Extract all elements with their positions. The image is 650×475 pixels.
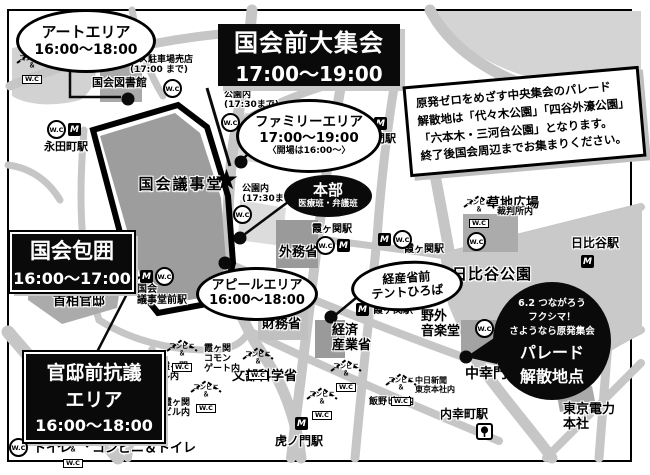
parade-line5: 解散地点 <box>493 363 611 387</box>
tepco-label: 東京電力 本社 <box>563 403 615 432</box>
headquarters-name: 本部 <box>313 182 343 199</box>
wc-icon: W.C <box>393 230 412 249</box>
chunichi-shimbun-note: 中日新聞 東京本社内 <box>415 377 455 395</box>
family-area-time: 17:00～19:00 <box>259 131 358 147</box>
wc-icon: W.C <box>163 79 182 98</box>
main-rally-time: 17:00～19:00 <box>218 58 400 87</box>
tepco-line2: 本社 <box>563 418 615 433</box>
convenience-wc-icon: コンビニ ＆ W.C <box>384 372 418 406</box>
family-area-note: 〈開場は16:00～〉 <box>268 146 351 156</box>
shop-icon-amp: ＆ <box>56 446 90 453</box>
meti-line1: 経済 <box>332 324 371 339</box>
headquarters-sub: 医療班・弁護班 <box>298 200 358 210</box>
kokkaigijidomae-icons: M W.C <box>140 267 174 286</box>
convenience-wc-icon: コンビニ ＆ W.C <box>462 194 496 228</box>
star-marker-diet-east: ★ <box>214 166 239 194</box>
pm-office-label: 首相官邸 <box>53 295 105 310</box>
family-area-callout: ファミリーエリア 17:00～19:00 〈開場は16:00～〉 <box>236 99 382 173</box>
mofa-label: 外務省 <box>279 246 318 261</box>
kantei-protest-banner: 官邸前抗議 エリア 16:00～18:00 <box>24 352 164 442</box>
station-kasumigaseki-a: 霞ヶ関駅 <box>312 224 352 235</box>
art-area-dot <box>122 93 135 106</box>
kasumigaseki-bldg-note: 霞ヶ関 ビル内 <box>163 398 190 418</box>
shop-icon-wc: W.C <box>63 459 83 468</box>
headquarters-callout: 本部 医療班・弁護班 <box>284 175 372 217</box>
park-note1-line1: 公園内 <box>224 90 279 100</box>
appeal-area-callout: アピールエリア 16:00～18:00 <box>196 267 318 321</box>
surround-time: 16:00～17:00 <box>12 265 132 289</box>
wc-icon: W.C <box>475 319 494 338</box>
art-area-time: 16:00～18:00 <box>34 42 137 58</box>
shop-icon-amp: ＆ <box>384 384 418 391</box>
shop-icon-amp: ＆ <box>189 391 223 398</box>
shop-icon-wc: W.C <box>172 363 192 372</box>
meti-label: 経済 産業省 <box>332 324 371 353</box>
kasumigaseki-a-icons: W.C M <box>316 236 350 255</box>
kasumibldg-line1: 霞ヶ関 <box>163 398 190 408</box>
courthouse-note: 裁判所内 <box>497 207 533 217</box>
parade-end-dot <box>460 351 473 364</box>
metro-icon: M <box>68 123 81 136</box>
meti-line2: 産業省 <box>332 339 371 354</box>
kasumigaseki-common-gate-note: 霞ヶ関 コモン ゲート内 <box>204 344 240 374</box>
main-rally-name: 国会前大集会 <box>218 23 400 58</box>
chunichi-line2: 東京本社内 <box>415 386 455 395</box>
bus-shop-line2: (17:00 まで) <box>130 65 193 75</box>
parade-line4: パレード <box>493 339 611 363</box>
family-area-name: ファミリーエリア <box>255 115 363 131</box>
art-area-name: アートエリア <box>41 24 130 41</box>
wc-icon: W.C <box>316 236 335 255</box>
art-area-callout: アートエリア 16:00～18:00 <box>16 9 156 73</box>
kantei-protest-line2: エリア <box>26 385 162 412</box>
legend-convenience-label: コンビニ＆トイレ <box>92 442 196 457</box>
appeal-area-time: 16:00～18:00 <box>209 294 305 309</box>
shop-icon-amp: ＆ <box>241 358 275 365</box>
shop-icon-amp: ＆ <box>462 206 496 213</box>
wc-icon: W.C <box>233 205 252 224</box>
station-uchisaiwaicho: 内幸町駅 <box>440 408 488 421</box>
station-toranomon: 虎ノ門駅 <box>275 435 323 448</box>
kantei-protest-time: 16:00～18:00 <box>26 412 162 436</box>
music-hall-line2: 音楽堂 <box>421 325 460 340</box>
parade-line3: さようなら原発集会 <box>493 323 611 337</box>
wc-icon: W.C <box>155 267 174 286</box>
common-line3: ゲート内 <box>204 364 240 374</box>
protest-area-map: ★ ★ アートエリア 16:00～18:00 国会前大集会 17:00～19:0… <box>0 0 650 475</box>
station-nagatacho: 永田町駅 <box>44 141 88 153</box>
station-hibiya: 日比谷駅 <box>571 237 619 250</box>
convenience-wc-icon: コンビニ ＆ W.C <box>189 379 223 413</box>
surround-banner: 国会包囲 16:00～17:00 <box>10 232 134 292</box>
shop-icon-wc: W.C <box>391 397 411 406</box>
parade-line2: フクシマ！ <box>493 309 611 323</box>
nagatacho-icons: W.C M <box>47 120 81 139</box>
station-kokkai-line2: 議事堂前駅 <box>137 295 187 306</box>
appeal-area-dot <box>219 257 232 270</box>
appeal-area-name: アピールエリア <box>211 279 302 294</box>
headquarters-dot <box>234 232 247 245</box>
parade-end-callout: 6.2 つながろう フクシマ！ さようなら原発集会 パレード 解散地点 <box>493 282 611 400</box>
kasumibldg-line2: ビル内 <box>163 408 190 418</box>
tree-icon <box>476 423 493 440</box>
tent-plaza-dot <box>325 311 338 324</box>
parade-line1: 6.2 つながろう <box>493 295 611 309</box>
shop-icon-wc: W.C <box>469 219 489 228</box>
music-hall-label: 野外 音楽堂 <box>421 310 460 339</box>
shop-icon-amp: ＆ <box>329 370 363 377</box>
wc-icon: W.C <box>467 232 486 251</box>
shop-icon-wc: W.C <box>196 404 216 413</box>
metro-icon: M <box>140 270 153 283</box>
kantei-protest-line1: 官邸前抗議 <box>26 358 162 385</box>
wc-icon: W.C <box>47 120 66 139</box>
main-rally-banner: 国会前大集会 17:00～19:00 <box>218 24 400 86</box>
common-line2: コモン <box>204 354 240 364</box>
music-hall-line1: 野外 <box>421 310 460 325</box>
shop-icon-wc: W.C <box>312 411 332 420</box>
shop-icon-amp: ＆ <box>305 398 339 405</box>
shop-icon-wc: W.C <box>248 371 268 380</box>
convenience-wc-icon: コンビニ ＆ W.C <box>241 346 275 380</box>
metro-icon: M <box>337 239 350 252</box>
convenience-wc-icon: コンビニ ＆ W.C <box>305 386 339 420</box>
convenience-wc-icon: コンビニ ＆ W.C <box>165 338 199 372</box>
tent-plaza-line2: テントひろば <box>371 283 444 302</box>
shop-icon-wc: W.C <box>336 383 356 392</box>
metro-icon: M <box>378 233 391 246</box>
library-label: 国会図書館 <box>92 77 147 89</box>
common-line1: 霞ヶ関 <box>204 344 240 354</box>
shop-icon-amp: ＆ <box>165 350 199 357</box>
station-kokkaigijidomae: 国会 議事堂前駅 <box>137 284 187 306</box>
surround-name: 国会包囲 <box>12 235 132 265</box>
kasumigaseki-b-icons: M W.C <box>378 230 412 249</box>
metro-icon: M <box>581 255 594 268</box>
tepco-line1: 東京電力 <box>563 403 615 418</box>
hibiya-park-label: 日比谷公園 <box>452 266 532 283</box>
shop-icon-wc: W.C <box>22 75 42 84</box>
